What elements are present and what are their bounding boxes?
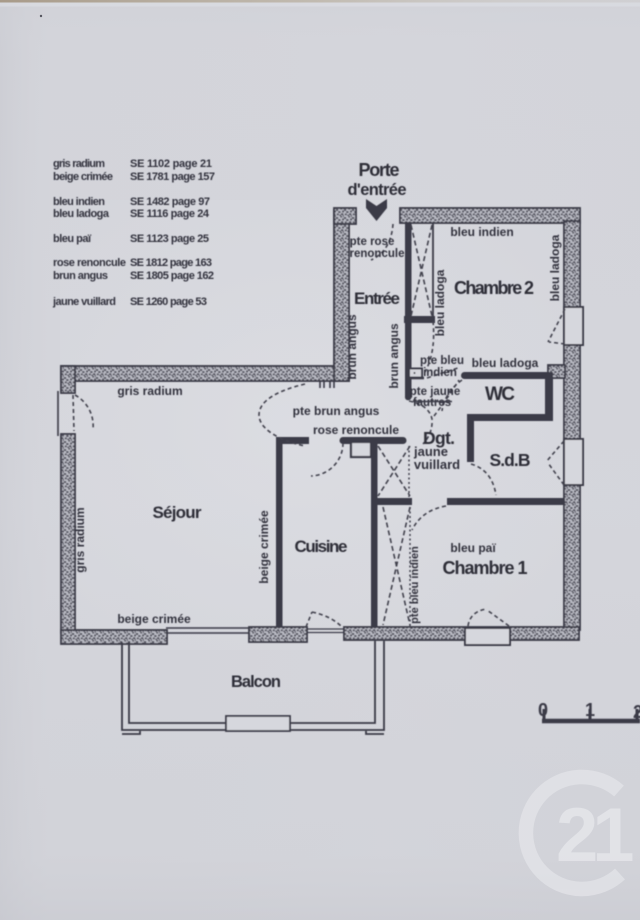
svg-text:rose renoncule: rose renoncule [53, 257, 126, 269]
svg-text:brun angus: brun angus [387, 323, 401, 389]
svg-text:Chambre 2: Chambre 2 [454, 278, 534, 298]
svg-text:SE 1116 page 24: SE 1116 page 24 [130, 208, 210, 220]
svg-text:bleu indien: bleu indien [450, 225, 513, 239]
svg-text:d'entrée: d'entrée [348, 181, 407, 199]
svg-text:2: 2 [633, 702, 640, 722]
svg-text:bleu ladoga: bleu ladoga [53, 208, 110, 220]
svg-text:bleu ladoga: bleu ladoga [548, 234, 562, 301]
svg-text:rose renoncule: rose renoncule [313, 423, 399, 437]
svg-text:gris radium: gris radium [117, 384, 182, 398]
svg-text:fautres: fautres [413, 397, 451, 409]
svg-text:bleu indien: bleu indien [53, 196, 105, 208]
svg-text:vuillard: vuillard [414, 457, 460, 472]
svg-text:pte bleu indien: pte bleu indien [409, 546, 421, 624]
svg-text:pte bleu: pte bleu [420, 355, 464, 367]
svg-text:beige crimée: beige crimée [53, 171, 113, 183]
svg-text:Entrée: Entrée [354, 289, 400, 308]
svg-text:21: 21 [556, 793, 633, 878]
svg-text:renoncule: renoncule [350, 248, 405, 260]
svg-text:SE 1260 page 53: SE 1260 page 53 [130, 296, 207, 308]
svg-text:SE 1123 page 25: SE 1123 page 25 [130, 233, 209, 245]
svg-text:beige crimée: beige crimée [257, 510, 271, 584]
svg-text:bleu paï: bleu paï [450, 541, 496, 555]
svg-text:pte rose: pte rose [350, 236, 395, 248]
svg-text:SE 1812 page 163: SE 1812 page 163 [130, 257, 212, 269]
svg-text:indien: indien [423, 367, 457, 379]
svg-text:gris radium: gris radium [53, 158, 105, 170]
svg-text:Séjour: Séjour [153, 503, 202, 522]
svg-text:pte brun angus: pte brun angus [293, 404, 380, 418]
svg-text:WC: WC [485, 384, 515, 405]
svg-text:0: 0 [538, 700, 548, 720]
svg-text:Porte: Porte [359, 160, 400, 180]
svg-text:beige crimée: beige crimée [117, 612, 191, 626]
svg-text:brun angus: brun angus [345, 314, 359, 380]
svg-text:bleu paï: bleu paï [53, 233, 92, 245]
svg-text:bleu ladoga: bleu ladoga [472, 356, 539, 370]
svg-text:brun angus: brun angus [53, 270, 108, 282]
svg-text:bleu ladoga: bleu ladoga [433, 269, 447, 336]
svg-text:1: 1 [585, 700, 595, 720]
svg-text:Cuisine: Cuisine [295, 537, 348, 556]
svg-text:S.d.B: S.d.B [490, 450, 531, 470]
svg-text:SE 1781 page 157: SE 1781 page 157 [130, 171, 215, 183]
svg-text:SE 1805 page 162: SE 1805 page 162 [130, 270, 214, 282]
svg-text:Balcon: Balcon [231, 673, 281, 691]
svg-text:gris radium: gris radium [73, 507, 87, 572]
svg-text:Chambre 1: Chambre 1 [443, 558, 528, 578]
svg-text:SE 1482 page 97: SE 1482 page 97 [130, 196, 210, 208]
svg-text:SE 1102 page 21: SE 1102 page 21 [130, 158, 212, 170]
svg-text:jaune vuillard: jaune vuillard [52, 296, 116, 308]
